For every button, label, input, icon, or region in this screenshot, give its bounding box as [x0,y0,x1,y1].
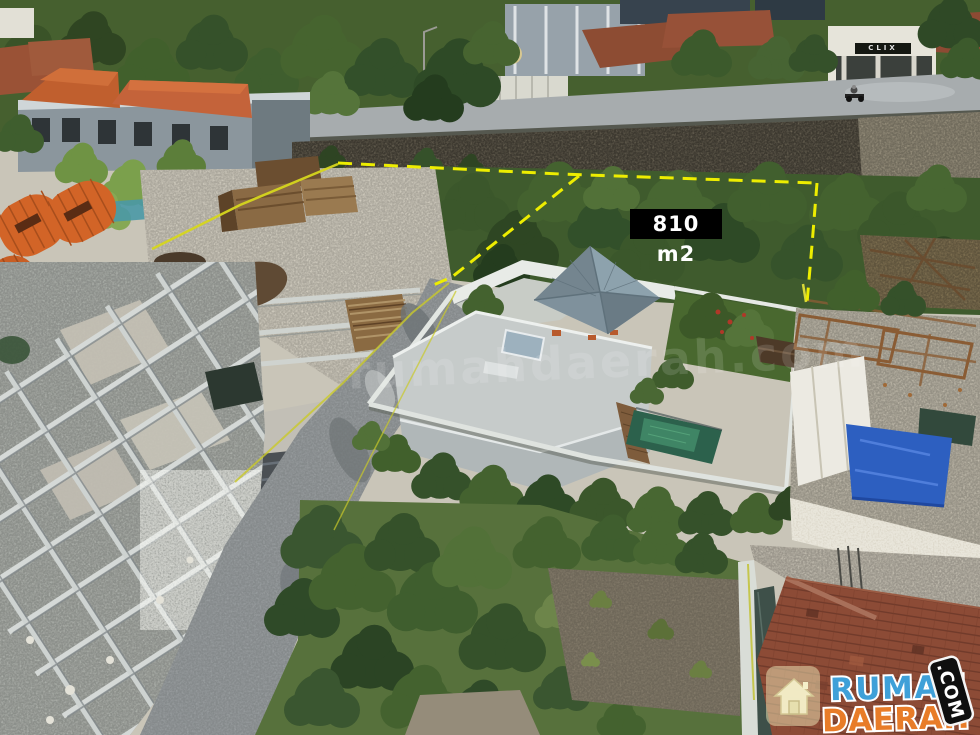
construction-site-right [790,270,980,585]
house-icon [766,666,820,726]
scrub-land [255,500,748,735]
area-label: 810 m2 [630,209,722,239]
blue-tarp-right [846,424,952,506]
aerial-photo-scene: rumahdaerah.com RUMAH DAERAH .COM [0,0,980,735]
aerial-photo: rumahdaerah.com RUMAH DAERAH .COM 810 m2… [0,0,980,735]
shop-sign-clix: CLIX [855,43,911,54]
